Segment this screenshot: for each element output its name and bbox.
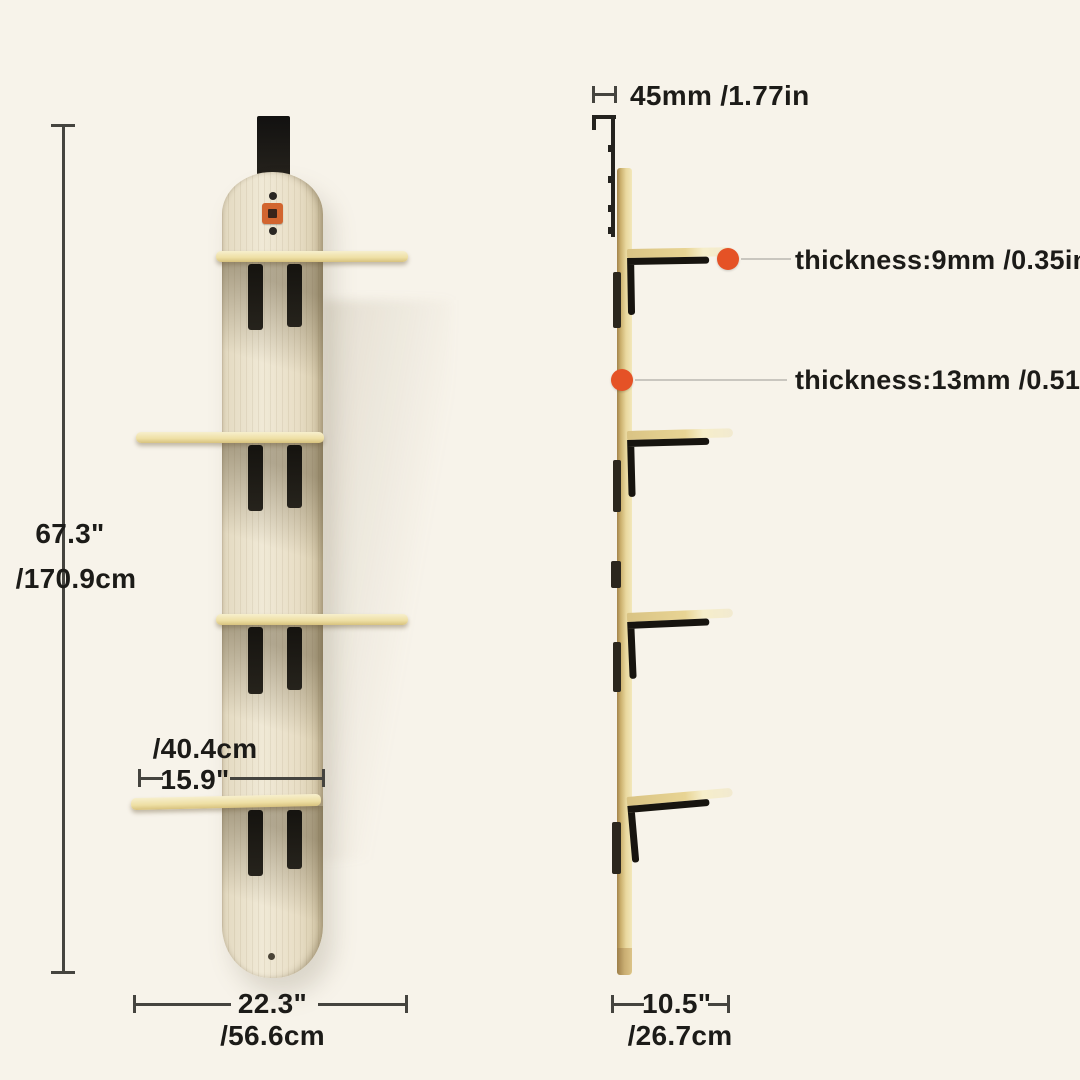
strap-slot xyxy=(287,810,302,869)
side-shelf-3 xyxy=(627,608,738,681)
bracket-horizontal xyxy=(627,438,709,447)
height-label-cm: /170.9cm xyxy=(0,563,152,595)
depth-label-inches: 10.5" xyxy=(642,988,710,1020)
strap-slot xyxy=(248,810,263,876)
shelf-shadow xyxy=(222,260,323,438)
board-thickness-label: thickness:13mm /0.51in xyxy=(795,365,1075,396)
edge-strap-slot xyxy=(613,272,621,328)
callout-dot xyxy=(611,369,633,391)
wall-cast-shadow xyxy=(322,300,452,860)
bracket-vertical xyxy=(627,447,635,497)
mount-depth-label: 45mm /1.77in xyxy=(630,80,880,112)
dim-tick xyxy=(727,995,730,1013)
brand-logo xyxy=(262,203,283,224)
strap-slot xyxy=(287,264,302,327)
shelf-shadow xyxy=(222,442,323,620)
screw-dot xyxy=(269,192,277,200)
board-side-foot xyxy=(617,948,632,975)
dim-line xyxy=(136,1003,231,1006)
strap-slot xyxy=(287,627,302,690)
hanging-strap xyxy=(257,116,290,176)
brand-logo-core xyxy=(268,209,277,218)
shelf-shadow xyxy=(222,623,323,801)
edge-strap-slot xyxy=(613,460,621,512)
depth-label-cm: /26.7cm xyxy=(620,1020,740,1052)
front-shelf-1 xyxy=(216,251,408,262)
shelf-width-label-cm: /40.4cm xyxy=(145,733,265,765)
hook-nub xyxy=(608,205,612,212)
side-shelf-4 xyxy=(627,788,741,865)
dim-tick xyxy=(322,769,325,787)
edge-strap-slot xyxy=(611,561,621,588)
bracket-vertical xyxy=(627,629,636,679)
callout-leader-line xyxy=(635,379,787,381)
dim-line xyxy=(708,1003,729,1006)
callout-leader-line xyxy=(741,258,791,260)
surfboard-back-panel xyxy=(222,172,323,978)
edge-strap-slot xyxy=(612,822,621,874)
dim-line xyxy=(230,777,323,780)
side-shelf-2 xyxy=(627,428,737,499)
hook-nub xyxy=(608,176,612,183)
edge-strap-slot xyxy=(613,642,621,692)
front-shelf-2 xyxy=(136,432,324,443)
bracket-horizontal xyxy=(627,257,709,265)
shelf-width-label-inches: 15.9" xyxy=(160,764,230,796)
total-width-label-cm: /56.6cm xyxy=(200,1020,345,1052)
callout-dot xyxy=(717,248,739,270)
hook-nub xyxy=(608,145,612,152)
shelf-thickness-label: thickness:9mm /0.35in xyxy=(795,245,1075,276)
front-shelf-3 xyxy=(216,614,408,625)
tail-screw-dot xyxy=(268,953,275,960)
dim-tick xyxy=(51,971,75,974)
height-label-inches: 67.3" xyxy=(0,518,140,550)
strap-slot xyxy=(248,445,263,511)
strap-slot xyxy=(287,445,302,508)
product-dimension-diagram: 67.3" /170.9cm /4 xyxy=(0,0,1080,1080)
strap-slot xyxy=(248,627,263,694)
total-width-label-inches: 22.3" xyxy=(230,988,315,1020)
strap-slot xyxy=(248,264,263,330)
bracket-vertical xyxy=(627,265,635,315)
dim-line xyxy=(318,1003,407,1006)
hook-lip xyxy=(592,115,596,130)
dim-tick xyxy=(614,86,617,103)
dim-tick xyxy=(405,995,408,1013)
hook-nub xyxy=(608,227,612,234)
dim-line xyxy=(614,1003,644,1006)
screw-dot xyxy=(269,227,277,235)
